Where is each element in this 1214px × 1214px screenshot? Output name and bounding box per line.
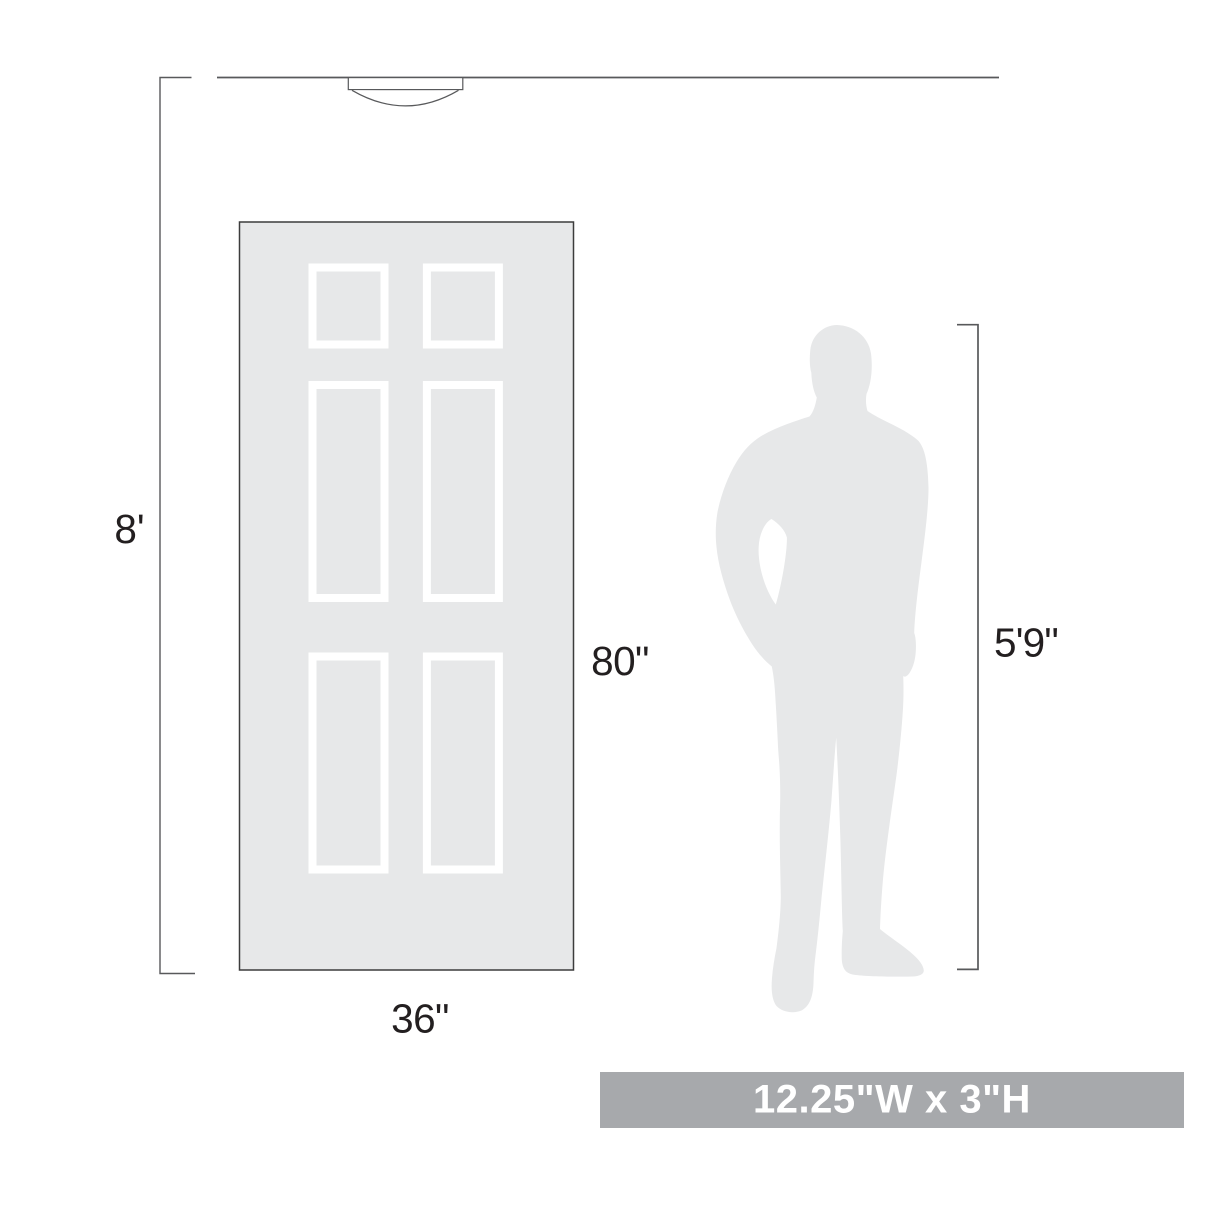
svg-text:8': 8' — [114, 506, 144, 552]
svg-text:80": 80" — [591, 638, 649, 684]
svg-text:36": 36" — [391, 996, 449, 1042]
svg-text:12.25"W x 3"H: 12.25"W x 3"H — [753, 1078, 1031, 1122]
svg-text:5'9": 5'9" — [994, 620, 1058, 666]
